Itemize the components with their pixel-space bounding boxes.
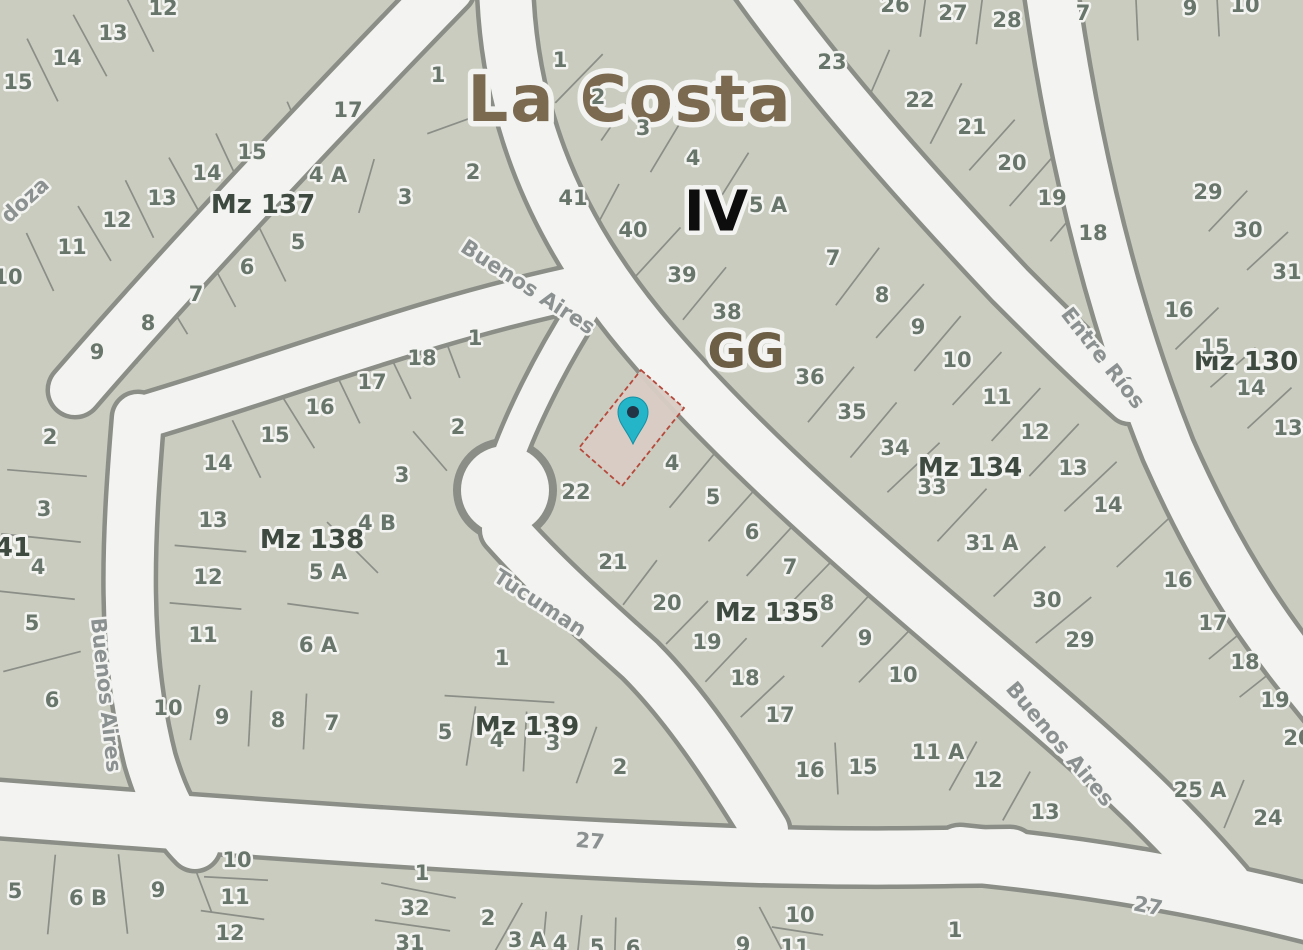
parcel-label: 8 — [271, 708, 286, 732]
parcel-label: 17 — [333, 98, 362, 122]
parcel-label: 21 — [957, 115, 986, 139]
parcel-label: 30 — [1233, 218, 1262, 242]
parcel-label: 2 — [481, 906, 496, 930]
parcel-label: 12 — [1020, 420, 1049, 444]
parcel-label: 10 — [888, 663, 917, 687]
parcel-label: 1 — [495, 646, 510, 670]
parcel-label: 18 — [1078, 221, 1107, 245]
parcel-label: 19 — [1260, 688, 1289, 712]
parcel-label: 11 — [780, 935, 809, 950]
parcel-label: 6 — [240, 255, 255, 279]
parcel-label: 20 — [997, 151, 1026, 175]
parcel-label: 9 — [736, 933, 751, 950]
parcel-label: 18 — [407, 346, 436, 370]
parcel-label: 7 — [826, 246, 841, 270]
parcel-label: 11 — [57, 235, 86, 259]
parcel-label: 9 — [151, 878, 166, 902]
section-label: IV — [684, 180, 749, 245]
parcel-label: 22 — [561, 480, 590, 504]
parcel-label: 41 — [558, 186, 587, 210]
parcel-label: 15 — [3, 70, 32, 94]
parcel-label: 14 — [1093, 493, 1122, 517]
parcel-label: 26 — [880, 0, 909, 17]
parcel-label: 14 — [192, 161, 221, 185]
parcel-label: 14 — [203, 451, 232, 475]
parcel-label: 6 — [626, 936, 641, 950]
parcel-label: 3 — [395, 463, 410, 487]
parcel-label: 13 — [98, 21, 127, 45]
parcel-label: 4 — [553, 931, 568, 950]
parcel-label: 29 — [1193, 180, 1222, 204]
parcel-label: 20 — [1283, 726, 1303, 750]
parcel-label: 16 — [795, 758, 824, 782]
map-viewport[interactable]: La CostaIVGGdozaBuenos AiresEntre RíosTu… — [0, 0, 1303, 950]
parcel-label: 5 — [25, 611, 40, 635]
parcel-label: 10 — [942, 348, 971, 372]
parcel-label: 10 — [1230, 0, 1259, 17]
parcel-label: 9 — [1183, 0, 1198, 20]
parcel-label: 12 — [102, 208, 131, 232]
parcel-label: 14 — [52, 46, 81, 70]
parcel-label: 7 — [783, 555, 798, 579]
parcel-label: 15 — [848, 755, 877, 779]
parcel-label: 30 — [1032, 588, 1061, 612]
parcel-label: 6 — [45, 688, 60, 712]
parcel-label: 12 — [215, 921, 244, 945]
parcel-label: 12 — [193, 565, 222, 589]
parcel-label: 2 — [43, 425, 58, 449]
parcel-label: 1 — [431, 63, 446, 87]
parcel-label: 25 A — [1174, 778, 1228, 802]
parcel-label: 13 — [1273, 416, 1302, 440]
parcel-label: 18 — [730, 666, 759, 690]
parcel-label: 21 — [598, 550, 627, 574]
parcel-label: 5 — [706, 485, 721, 509]
parcel-label: 31 — [1272, 260, 1301, 284]
parcel-label: 7 — [1076, 1, 1091, 25]
parcel-label: 12 — [973, 768, 1002, 792]
parcel-label: 13 — [198, 508, 227, 532]
parcel-label: 4 — [490, 728, 505, 752]
parcel-label: 5 — [8, 879, 23, 903]
parcel-label: 31 A — [966, 531, 1020, 555]
parcel-label: 22 — [905, 88, 934, 112]
parcel-label: 40 — [618, 218, 647, 242]
block-label: Mz 138 — [260, 525, 364, 555]
pin-core — [627, 406, 639, 418]
parcel-label: 2 — [466, 160, 481, 184]
parcel-label: 18 — [1230, 650, 1259, 674]
parcel-label: 17 — [357, 370, 386, 394]
parcel-label: 16 — [305, 395, 334, 419]
parcel-label: 8 — [875, 283, 890, 307]
parcel-label: 2 — [451, 415, 466, 439]
parcel-label: 19 — [692, 630, 721, 654]
parcel-label: 6 B — [69, 886, 107, 910]
parcel-label: 8 — [141, 311, 156, 335]
parcel-label: 15 — [260, 423, 289, 447]
parcel-label: 3 A — [508, 928, 547, 950]
parcel-label: 16 — [1164, 298, 1193, 322]
parcel-label: 3 — [546, 731, 561, 755]
parcel-label: 12 — [148, 0, 177, 20]
parcel-label: 4 — [31, 555, 46, 579]
parcel-label: 13 — [147, 186, 176, 210]
parcel-label: 19 — [1037, 186, 1066, 210]
parcel-label: 2 — [613, 755, 628, 779]
parcel-label: 17 — [765, 703, 794, 727]
parcel-label: 1 — [948, 918, 963, 942]
street-label: 27 — [574, 828, 605, 854]
parcel-label: 27 — [938, 1, 967, 25]
parcel-label: 10 — [153, 696, 182, 720]
parcel-label: 8 — [820, 591, 835, 615]
parcel-label: 20 — [652, 591, 681, 615]
parcel-label: 11 A — [912, 740, 966, 764]
block-label: Mz 137 — [211, 190, 315, 220]
parcel-label: 11 — [982, 385, 1011, 409]
zone-label: GG — [707, 325, 784, 380]
block-label: Mz 135 — [715, 598, 819, 628]
parcel-label: 5 A — [749, 193, 788, 217]
cadastral-map[interactable]: La CostaIVGGdozaBuenos AiresEntre RíosTu… — [0, 0, 1303, 950]
parcel-label: 32 — [400, 896, 429, 920]
parcel-label: 33 — [917, 475, 946, 499]
cul-de-sac[interactable] — [461, 446, 549, 534]
parcel-label: 10 — [785, 903, 814, 927]
parcel-label: 15 — [1200, 335, 1229, 359]
parcel-label: 9 — [858, 626, 873, 650]
parcel-label: 38 — [712, 300, 741, 324]
map-title: La Costa — [467, 63, 792, 137]
parcel-label: 15 — [237, 140, 266, 164]
parcel-label: 14 — [1236, 376, 1265, 400]
parcel-label: 4 — [665, 451, 680, 475]
parcel-label: 28 — [992, 8, 1021, 32]
parcel-label: 4 — [686, 146, 701, 170]
parcel-label: 10 — [0, 265, 23, 289]
parcel-label: 39 — [667, 263, 696, 287]
parcel-label: 9 — [90, 340, 105, 364]
parcel-label: 23 — [817, 50, 846, 74]
parcel-label: 9 — [215, 705, 230, 729]
parcel-label: 29 — [1065, 628, 1094, 652]
parcel-label: 4 B — [358, 511, 396, 535]
parcel-label: 1 — [415, 861, 430, 885]
parcel-label: 36 — [795, 365, 824, 389]
parcel-label: 4 A — [309, 163, 348, 187]
parcel-label: 17 — [1198, 611, 1227, 635]
parcel-label: 10 — [222, 848, 251, 872]
parcel-label: 3 — [37, 497, 52, 521]
parcel-label: 9 — [911, 315, 926, 339]
parcel-label: 6 — [745, 520, 760, 544]
parcel-label: 3 — [636, 116, 651, 140]
parcel-label: 13 — [1030, 800, 1059, 824]
parcel-label: 5 — [590, 935, 605, 950]
parcel-label: 5 — [438, 720, 453, 744]
parcel-label: 5 — [291, 230, 306, 254]
parcel-label: 13 — [1058, 456, 1087, 480]
parcel-label: 16 — [1163, 568, 1192, 592]
parcel-label: 31 — [395, 931, 424, 950]
parcel-label: 11 — [188, 623, 217, 647]
parcel-label: 3 — [398, 185, 413, 209]
block-label: 41 — [0, 533, 31, 563]
parcel-label: 5 A — [309, 560, 348, 584]
parcel-label: 24 — [1253, 806, 1282, 830]
parcel-label: 7 — [325, 711, 340, 735]
parcel-label: 6 A — [299, 633, 338, 657]
parcel-label: 34 — [880, 436, 909, 460]
parcel-label: 11 — [220, 885, 249, 909]
parcel-label: 1 — [468, 326, 483, 350]
parcel-label: 35 — [837, 400, 866, 424]
parcel-label: 2 — [591, 85, 606, 109]
parcel-label: 7 — [189, 282, 204, 306]
parcel-label: 1 — [553, 48, 568, 72]
